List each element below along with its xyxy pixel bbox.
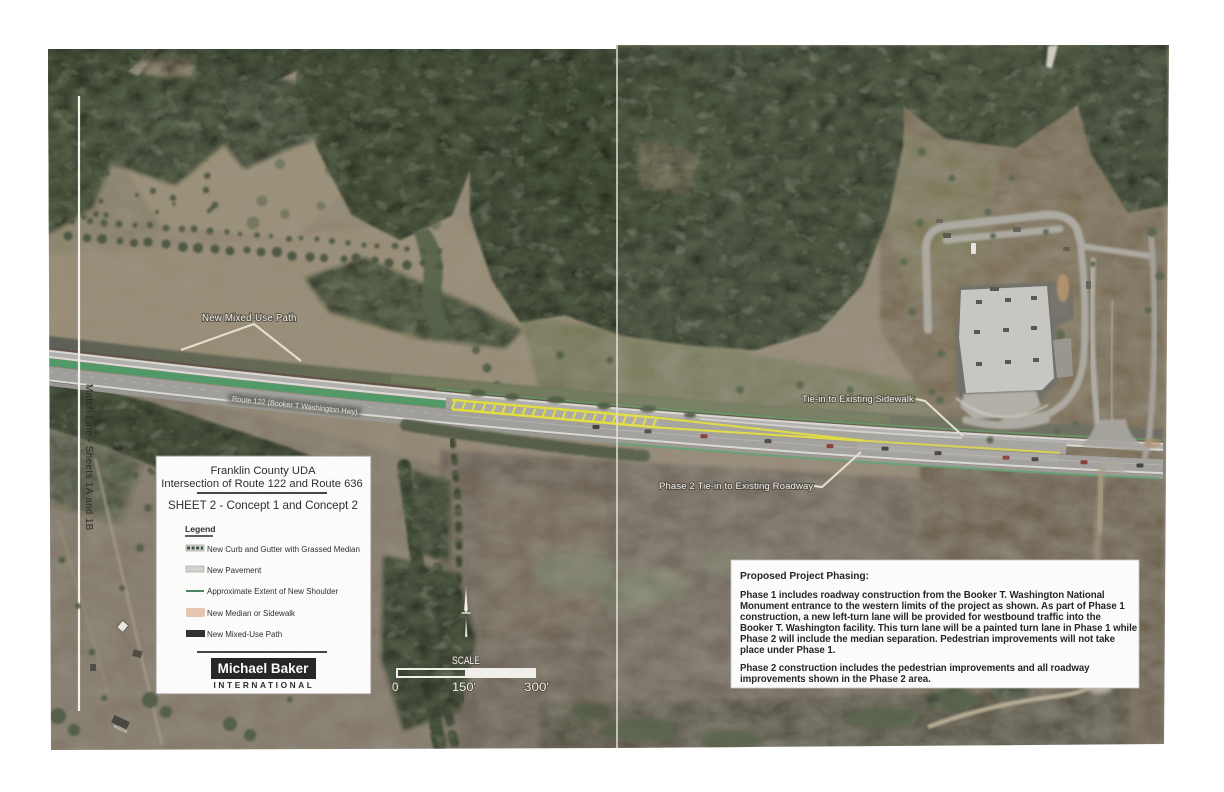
svg-text:150': 150' [452, 682, 476, 694]
svg-text:New Mixed-Use Path: New Mixed-Use Path [207, 630, 282, 639]
svg-text:Phase 2 will include the media: Phase 2 will include the median separati… [740, 634, 1116, 645]
svg-text:Phase 2 Tie-in to Existing Roa: Phase 2 Tie-in to Existing Roadway [659, 481, 813, 492]
svg-text:Michael Baker: Michael Baker [218, 661, 310, 676]
svg-text:New Pavement: New Pavement [207, 566, 262, 575]
svg-text:improvements shown in the Phas: improvements shown in the Phase 2 area. [740, 674, 931, 685]
svg-text:Tie-in to Existing Sidewalk: Tie-in to Existing Sidewalk [802, 393, 914, 404]
svg-text:Franklin County UDA: Franklin County UDA [210, 465, 316, 477]
svg-text:INTERNATIONAL: INTERNATIONAL [214, 680, 315, 690]
svg-text:New Median or Sidewalk: New Median or Sidewalk [207, 609, 296, 618]
svg-text:SCALE: SCALE [452, 655, 480, 667]
svg-text:Monument entrance to the weste: Monument entrance to the western limits … [740, 601, 1125, 612]
svg-text:Legend: Legend [185, 524, 216, 534]
svg-text:Approximate Extent of New Shou: Approximate Extent of New Shoulder [207, 587, 339, 596]
svg-text:New Mixed-Use Path: New Mixed-Use Path [202, 313, 297, 324]
svg-text:Phase 1 includes roadway const: Phase 1 includes roadway construction fr… [740, 590, 1105, 601]
svg-text:construction, a new left-turn: construction, a new left-turn lane will … [740, 612, 1101, 623]
svg-text:Match Line - Sheets 1A and 1B: Match Line - Sheets 1A and 1B [83, 384, 94, 531]
svg-text:Proposed Project Phasing:: Proposed Project Phasing: [740, 571, 869, 582]
svg-text:Booker T. Washington facility.: Booker T. Washington facility. This turn… [740, 623, 1138, 634]
svg-text:Intersection of Route 122 and: Intersection of Route 122 and Route 636 [161, 478, 363, 490]
svg-text:SHEET 2 - Concept 1 and Concep: SHEET 2 - Concept 1 and Concept 2 [168, 499, 358, 512]
svg-text:New Curb and Gutter with Grass: New Curb and Gutter with Grassed Median [207, 545, 360, 554]
svg-text:Phase 2 construction includes: Phase 2 construction includes the pedest… [740, 663, 1090, 674]
svg-text:place under Phase 1.: place under Phase 1. [740, 645, 836, 656]
svg-text:300': 300' [524, 682, 549, 694]
svg-text:0: 0 [392, 682, 398, 694]
